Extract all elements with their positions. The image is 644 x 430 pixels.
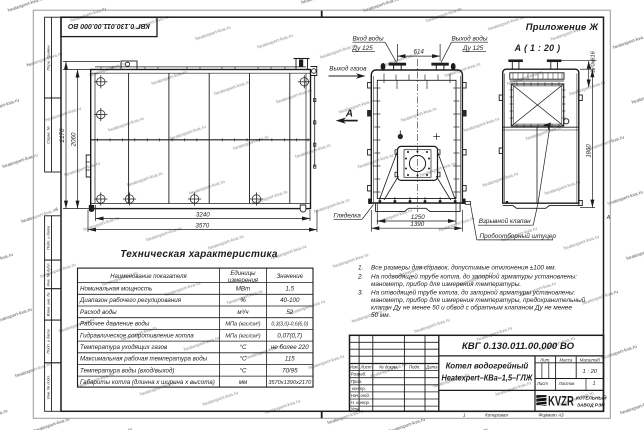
svg-text:Утв.: Утв. — [351, 407, 361, 412]
svg-text:40-100: 40-100 — [280, 297, 300, 304]
svg-text:2170: 2170 — [59, 128, 66, 143]
svg-text:115: 115 — [285, 356, 295, 363]
svg-text:КВГ 0.130.011.00.000 ВО: КВГ 0.130.011.00.000 ВО — [68, 22, 150, 29]
svg-text:Пров.: Пров. — [351, 379, 362, 384]
svg-text:1390: 1390 — [410, 221, 424, 228]
svg-text:Изм.: Изм. — [350, 365, 359, 370]
svg-text:Н. контр.: Н. контр. — [351, 400, 370, 405]
svg-text:Техническая характеристика: Техническая характеристика — [120, 249, 278, 260]
svg-text:Температура уходящих газов: Температура уходящих газов — [80, 344, 168, 351]
svg-text:А: А — [606, 215, 611, 221]
svg-text:Приложение Ж: Приложение Ж — [526, 21, 600, 32]
svg-text:2.: 2. — [357, 274, 363, 281]
svg-text:Лист: Лист — [359, 365, 371, 370]
svg-text:Разраб.: Разраб. — [351, 372, 367, 377]
svg-text:не более 220: не более 220 — [271, 344, 309, 351]
svg-text:Взам. инв. №: Взам. инв. № — [46, 292, 51, 317]
svg-text:Лист: Лист — [536, 381, 548, 386]
svg-text:Ду 125: Ду 125 — [462, 45, 484, 52]
svg-text:Пробоотборный штуцер: Пробоотборный штуцер — [480, 232, 557, 240]
svg-text:Масштаб: Масштаб — [580, 357, 601, 362]
svg-text:Наименование показателя: Наименование показателя — [110, 274, 187, 280]
svg-text:Значение: Значение — [277, 274, 304, 280]
svg-text:манометр, прибор для измерения: манометр, прибор для измерения температу… — [371, 296, 586, 304]
svg-text:Единицы: Единицы — [230, 271, 256, 277]
svg-text:1,5: 1,5 — [285, 286, 294, 293]
svg-text:Инв. № подл.: Инв. № подл. — [46, 375, 51, 399]
svg-text:м³/ч: м³/ч — [237, 309, 249, 316]
svg-text:1: 1 — [593, 381, 596, 387]
svg-text:манометр, прибор для измерения: манометр, прибор для измерения температу… — [371, 280, 521, 288]
svg-text:МПа (кгс/см²): МПа (кгс/см²) — [225, 333, 260, 339]
svg-text:%: % — [240, 297, 246, 304]
svg-text:Подп. и дата: Подп. и дата — [46, 225, 51, 250]
svg-text:50 мм.: 50 мм. — [371, 312, 390, 319]
svg-text:KVZR: KVZR — [548, 393, 574, 408]
svg-text:2060: 2060 — [71, 132, 78, 147]
svg-text:Все размеры для справок, допус: Все размеры для справок, допустимые откл… — [371, 264, 556, 272]
svg-text:170х616: 170х616 — [590, 50, 596, 72]
svg-text:Выход газов: Выход газов — [329, 65, 367, 73]
svg-text:Температура воды (вход/выход): Температура воды (вход/выход) — [80, 367, 174, 374]
svg-text:МВт: МВт — [236, 286, 250, 293]
svg-text:°С: °С — [240, 356, 247, 363]
svg-text:Формат А3: Формат А3 — [538, 413, 564, 418]
svg-text:А: А — [54, 207, 58, 212]
svg-text:Инв. № дубл.: Инв. № дубл. — [46, 262, 51, 286]
svg-text:0,3(3,0)-0,6(6,0): 0,3(3,0)-0,6(6,0) — [271, 322, 308, 328]
svg-text:А: А — [345, 108, 353, 119]
svg-text:Диапазон рабочего регулировани: Диапазон рабочего регулирования — [79, 297, 182, 304]
svg-text:1.: 1. — [358, 265, 363, 272]
svg-text:Номинальная мощность: Номинальная мощность — [80, 286, 152, 293]
svg-text:мм: мм — [239, 379, 248, 386]
svg-text:ЗАВОД РЭП: ЗАВОД РЭП — [577, 402, 605, 407]
svg-text:Подп. и дата: Подп. и дата — [46, 328, 51, 353]
svg-text:°С: °С — [240, 344, 247, 351]
svg-text:Масса: Масса — [560, 357, 573, 362]
svg-text:Взрывной клапан: Взрывной клапан — [479, 217, 531, 225]
svg-text:Подп.: Подп. — [409, 365, 420, 370]
svg-text:Гидравлическое сопротивление к: Гидравлическое сопротивление котла — [80, 332, 194, 339]
svg-text:70/95: 70/95 — [282, 367, 298, 374]
svg-text:Лит.: Лит. — [539, 357, 550, 362]
svg-text:1 : 20: 1 : 20 — [583, 369, 598, 375]
svg-text:Выход воды: Выход воды — [452, 35, 488, 43]
svg-text:МПа (кгс/см²): МПа (кгс/см²) — [225, 322, 260, 328]
svg-text:КОТЕЛЬНЫЙ: КОТЕЛЬНЫЙ — [576, 394, 607, 401]
svg-text:0,07(0,7): 0,07(0,7) — [277, 332, 302, 339]
svg-text:Перв. примен.: Перв. примен. — [46, 45, 51, 71]
svg-text:Дата: Дата — [425, 365, 438, 370]
svg-text:Максимальная рабочая температу: Максимальная рабочая температура воды — [80, 356, 208, 363]
svg-text:На подводящей трубе котла, до: На подводящей трубе котла, до запорной а… — [371, 273, 577, 281]
svg-text:измерения: измерения — [228, 278, 259, 284]
svg-text:Рабочее давление воды: Рабочее давление воды — [80, 321, 150, 328]
svg-text:контр.: контр. — [352, 386, 366, 391]
svg-text:52: 52 — [286, 309, 293, 316]
svg-text:Ду 125: Ду 125 — [352, 45, 374, 52]
svg-text:3570: 3570 — [195, 222, 209, 229]
svg-text:614: 614 — [414, 49, 425, 56]
svg-text:Габариты котла (длинна х ширин: Габариты котла (длинна х ширина х высота… — [80, 379, 215, 386]
svg-text:А ( 1 : 20 ): А ( 1 : 20 ) — [514, 43, 561, 53]
svg-text:1: 1 — [463, 413, 466, 418]
svg-text:Копировал: Копировал — [485, 413, 508, 418]
svg-text:На отводящей трубе котла, до з: На отводящей трубе котла, до запорной ар… — [371, 289, 576, 297]
svg-text:КВГ 0.130.011.00.000 ВО: КВГ 0.130.011.00.000 ВО — [462, 341, 575, 352]
svg-text:3570х1390х2170: 3570х1390х2170 — [268, 380, 312, 386]
svg-text:Вход воды: Вход воды — [353, 35, 384, 43]
svg-text:клапан Ду не менее 50 и обвод: клапан Ду не менее 50 и обвод с обратным… — [371, 303, 572, 311]
svg-text:Справ. №: Справ. № — [46, 125, 51, 143]
svg-text:Котел водогрейный: Котел водогрейный — [446, 362, 529, 371]
svg-text:1250: 1250 — [411, 214, 425, 221]
svg-text:1860: 1860 — [587, 144, 593, 158]
svg-text:Heatexpert–КВа–1,5–ГЛЖ: Heatexpert–КВа–1,5–ГЛЖ — [442, 374, 534, 383]
svg-text:3.: 3. — [358, 290, 363, 297]
svg-text:№ докум.: № докум. — [379, 365, 398, 370]
svg-text:3240: 3240 — [196, 211, 210, 218]
svg-text:Расход воды: Расход воды — [80, 309, 117, 316]
svg-text:Листов: Листов — [558, 381, 575, 386]
svg-text:Гляделка: Гляделка — [334, 212, 362, 220]
svg-text:°С: °С — [240, 367, 247, 374]
svg-text:Нач. отд.: Нач. отд. — [351, 393, 370, 398]
